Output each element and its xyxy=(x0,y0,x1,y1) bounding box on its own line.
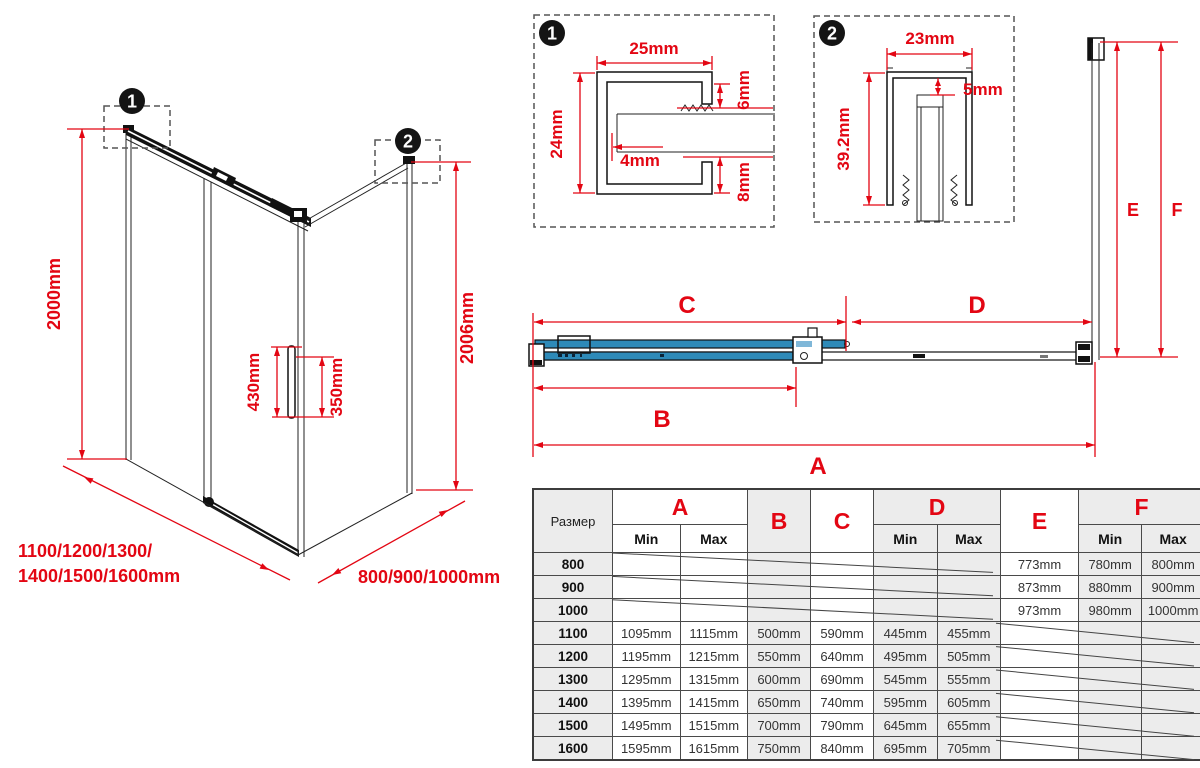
value-cell xyxy=(1079,737,1142,761)
value-cell xyxy=(874,553,938,576)
svg-text:A: A xyxy=(809,453,826,480)
value-cell: 1195mm xyxy=(613,645,681,668)
value-cell: 880mm xyxy=(1079,576,1142,599)
value-cell: 545mm xyxy=(874,668,938,691)
table-row: 800773mm780mm800mm xyxy=(533,553,1200,576)
column-header-F: F xyxy=(1079,489,1200,525)
value-cell: 1295mm xyxy=(613,668,681,691)
value-cell: 980mm xyxy=(1079,599,1142,622)
table-row: 900873mm880mm900mm xyxy=(533,576,1200,599)
dim-C: C xyxy=(533,292,846,457)
svg-text:2000mm: 2000mm xyxy=(44,258,64,330)
value-cell xyxy=(1079,691,1142,714)
row-size-label: 1200 xyxy=(533,645,613,668)
value-cell xyxy=(613,553,681,576)
value-cell xyxy=(1142,668,1200,691)
svg-text:C: C xyxy=(678,292,695,319)
min-header: Min xyxy=(613,525,681,553)
value-cell xyxy=(1079,645,1142,668)
value-cell xyxy=(1001,714,1079,737)
value-cell: 645mm xyxy=(874,714,938,737)
svg-text:1400/1500/1600mm: 1400/1500/1600mm xyxy=(18,566,180,586)
svg-text:350mm: 350mm xyxy=(327,358,346,417)
value-cell: 695mm xyxy=(874,737,938,761)
value-cell: 900mm xyxy=(1142,576,1200,599)
column-header-E: E xyxy=(1001,489,1079,553)
value-cell xyxy=(1001,668,1079,691)
value-cell: 600mm xyxy=(748,668,811,691)
column-header-C: C xyxy=(811,489,874,553)
table-row: 12001195mm1215mm550mm640mm495mm505mm xyxy=(533,645,1200,668)
value-cell: 800mm xyxy=(1142,553,1200,576)
row-size-label: 1000 xyxy=(533,599,613,622)
table-row: 13001295mm1315mm600mm690mm545mm555mm xyxy=(533,668,1200,691)
svg-text:E: E xyxy=(1127,200,1139,220)
value-cell: 1515mm xyxy=(680,714,748,737)
value-cell: 1095mm xyxy=(613,622,681,645)
dim-D: D xyxy=(852,292,1092,325)
badge-2-number: 2 xyxy=(403,132,413,152)
value-cell: 700mm xyxy=(748,714,811,737)
value-cell: 605mm xyxy=(937,691,1001,714)
value-cell: 640mm xyxy=(811,645,874,668)
value-cell: 1415mm xyxy=(680,691,748,714)
dim-E: E xyxy=(1100,42,1178,357)
value-cell xyxy=(680,576,748,599)
value-cell: 1215mm xyxy=(680,645,748,668)
value-cell: 1315mm xyxy=(680,668,748,691)
max-header: Max xyxy=(680,525,748,553)
plan-structure xyxy=(529,38,1104,366)
value-cell xyxy=(613,599,681,622)
value-cell: 840mm xyxy=(811,737,874,761)
row-size-label: 1400 xyxy=(533,691,613,714)
table-row: 11001095mm1115mm500mm590mm445mm455mm xyxy=(533,622,1200,645)
value-cell xyxy=(1079,714,1142,737)
value-cell xyxy=(748,599,811,622)
value-cell: 750mm xyxy=(748,737,811,761)
svg-text:F: F xyxy=(1172,200,1183,220)
value-cell: 550mm xyxy=(748,645,811,668)
table-row: 1000973mm980mm1000mm xyxy=(533,599,1200,622)
value-cell: 505mm xyxy=(937,645,1001,668)
value-cell: 500mm xyxy=(748,622,811,645)
value-cell xyxy=(1142,622,1200,645)
value-cell: 773mm xyxy=(1001,553,1079,576)
value-cell xyxy=(613,576,681,599)
value-cell: 780mm xyxy=(1079,553,1142,576)
door-handle xyxy=(288,346,295,418)
value-cell: 445mm xyxy=(874,622,938,645)
size-table: Размер A B C D E F Min Max Min Max Min M… xyxy=(532,488,1196,760)
isometric-view: 1 2 2000mm 2006mm xyxy=(0,60,520,620)
column-header-D: D xyxy=(874,489,1001,525)
value-cell xyxy=(1001,737,1079,761)
plan-view: C D B A E xyxy=(520,10,1200,510)
max-header: Max xyxy=(937,525,1001,553)
row-size-label: 1100 xyxy=(533,622,613,645)
value-cell: 590mm xyxy=(811,622,874,645)
dim-2006mm: 2006mm xyxy=(411,162,477,490)
max-header: Max xyxy=(1142,525,1200,553)
value-cell: 1595mm xyxy=(613,737,681,761)
value-cell xyxy=(1142,714,1200,737)
value-cell: 495mm xyxy=(874,645,938,668)
value-cell: 1495mm xyxy=(613,714,681,737)
value-cell xyxy=(874,576,938,599)
row-size-label: 800 xyxy=(533,553,613,576)
table-row: 15001495mm1515mm700mm790mm645mm655mm xyxy=(533,714,1200,737)
value-cell: 690mm xyxy=(811,668,874,691)
value-cell xyxy=(1142,691,1200,714)
min-header: Min xyxy=(1079,525,1142,553)
svg-text:B: B xyxy=(653,406,670,433)
svg-text:1100/1200/1300/: 1100/1200/1300/ xyxy=(18,541,152,561)
dim-side-widths: 800/900/1000mm xyxy=(318,501,500,587)
value-cell: 790mm xyxy=(811,714,874,737)
table-header-row: Размер A B C D E F xyxy=(533,489,1200,525)
column-header-A: A xyxy=(613,489,748,525)
value-cell xyxy=(811,576,874,599)
value-cell xyxy=(1079,622,1142,645)
value-cell xyxy=(1001,645,1079,668)
svg-text:D: D xyxy=(968,292,985,319)
value-cell: 655mm xyxy=(937,714,1001,737)
svg-text:2006mm: 2006mm xyxy=(457,292,477,364)
dim-B: B xyxy=(534,367,796,433)
value-cell xyxy=(937,553,1001,576)
value-cell xyxy=(1142,737,1200,761)
value-cell: 1115mm xyxy=(680,622,748,645)
value-cell: 1395mm xyxy=(613,691,681,714)
size-column-header: Размер xyxy=(533,489,613,553)
shower-enclosure-technical-drawing: 1 2 2000mm 2006mm xyxy=(0,0,1200,768)
value-cell xyxy=(811,553,874,576)
row-size-label: 900 xyxy=(533,576,613,599)
min-header: Min xyxy=(874,525,938,553)
value-cell: 555mm xyxy=(937,668,1001,691)
badge-1-number: 1 xyxy=(127,92,137,112)
value-cell xyxy=(811,599,874,622)
roller-carriage-icon xyxy=(793,328,822,363)
value-cell xyxy=(680,553,748,576)
dim-2000mm: 2000mm xyxy=(44,129,129,459)
row-size-label: 1500 xyxy=(533,714,613,737)
value-cell xyxy=(1142,645,1200,668)
dim-A: A xyxy=(534,362,1095,480)
value-cell: 1000mm xyxy=(1142,599,1200,622)
value-cell: 873mm xyxy=(1001,576,1079,599)
value-cell xyxy=(937,576,1001,599)
value-cell xyxy=(874,599,938,622)
value-cell xyxy=(1001,622,1079,645)
value-cell xyxy=(680,599,748,622)
row-size-label: 1300 xyxy=(533,668,613,691)
value-cell: 1615mm xyxy=(680,737,748,761)
column-header-B: B xyxy=(748,489,811,553)
row-size-label: 1600 xyxy=(533,737,613,761)
dim-F: F xyxy=(1158,42,1183,357)
value-cell: 740mm xyxy=(811,691,874,714)
value-cell: 705mm xyxy=(937,737,1001,761)
value-cell xyxy=(1079,668,1142,691)
value-cell: 595mm xyxy=(874,691,938,714)
enclosure-structure xyxy=(123,125,415,557)
value-cell xyxy=(748,553,811,576)
value-cell xyxy=(1001,691,1079,714)
value-cell: 650mm xyxy=(748,691,811,714)
value-cell: 455mm xyxy=(937,622,1001,645)
table-row: 16001595mm1615mm750mm840mm695mm705mm xyxy=(533,737,1200,761)
table-row: 14001395mm1415mm650mm740mm595mm605mm xyxy=(533,691,1200,714)
value-cell xyxy=(748,576,811,599)
svg-text:430mm: 430mm xyxy=(244,353,263,412)
svg-text:800/900/1000mm: 800/900/1000mm xyxy=(358,567,500,587)
value-cell xyxy=(937,599,1001,622)
value-cell: 973mm xyxy=(1001,599,1079,622)
